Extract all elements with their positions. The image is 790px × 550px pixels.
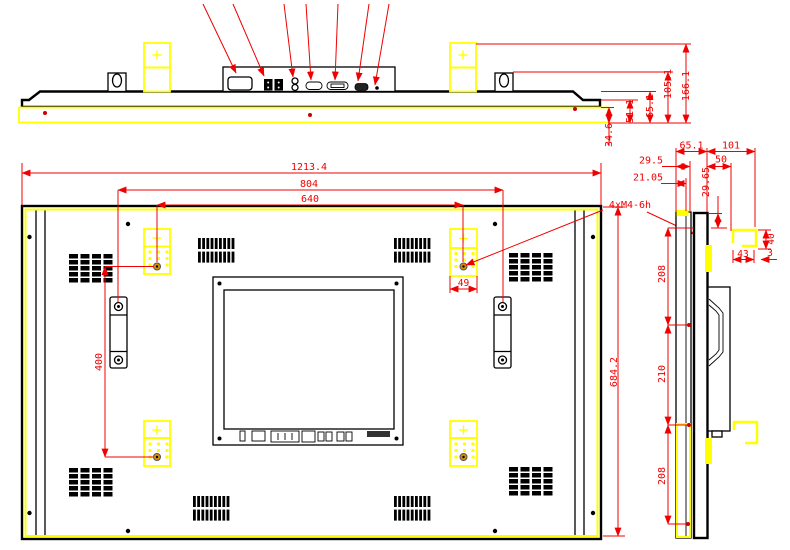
hdmi-port <box>355 84 368 91</box>
side-bezel-highlight-top <box>677 210 689 216</box>
audio-jack <box>292 85 298 91</box>
power-switch <box>264 79 273 91</box>
vesa-bracket-top-right <box>450 43 476 92</box>
dim-overall-width: 1213.4 <box>291 162 327 173</box>
dim-hole-pitch-top: 208 <box>657 265 668 283</box>
side-back-highlight <box>705 438 712 464</box>
connector-box <box>223 67 395 92</box>
side-bracket-top <box>733 230 756 246</box>
rear-view: 1213.4 804 640 684.2 400 49 4xM4-6h <box>22 162 694 539</box>
dim-cover-step: 51.1 <box>625 99 636 123</box>
dim-bracket-height: 166.1 <box>681 71 692 101</box>
dim-handle-spacing: 804 <box>300 179 318 190</box>
dim-mount-spacing-y: 400 <box>94 353 105 371</box>
front-bezel-strip <box>19 108 608 123</box>
indicator-dot <box>375 86 379 90</box>
dim-rear-offset: 50 <box>715 155 727 166</box>
dim-bracket-height: 40 <box>766 233 777 245</box>
electronics-box <box>213 277 403 445</box>
bezel-mark-dot <box>43 111 47 115</box>
dim-bezel-depth: 29.5 <box>639 156 663 167</box>
dim-overall-height: 684.2 <box>609 357 620 387</box>
dim-panel-depth: 65.1 <box>679 141 703 152</box>
dim-front-step: 34.6 <box>604 123 615 147</box>
dim-bracket-depth: 43 <box>737 249 748 260</box>
side-bezel <box>676 212 691 538</box>
dim-top-offset: 29.65 <box>701 167 712 197</box>
label-block <box>367 431 390 437</box>
audio-jack <box>292 78 298 84</box>
drawing-canvas: 34.6 51.1 65.1 105.1 166.1 <box>0 0 790 550</box>
mounting-clip-left <box>108 73 126 92</box>
bezel-mark-dot <box>573 107 577 111</box>
carry-handle-right <box>494 297 511 368</box>
carry-handle-left <box>110 297 127 368</box>
dim-hole-pitch-bottom: 208 <box>657 467 668 485</box>
bezel-mark-dot <box>308 113 312 117</box>
power-switch <box>275 79 284 91</box>
technical-drawing: 34.6 51.1 65.1 105.1 166.1 <box>0 0 790 550</box>
mounting-clip-right <box>495 73 513 92</box>
dim-bracket-gap: 3 <box>767 248 773 259</box>
side-profile-view: 65.1 101 29.5 50 21.05 29.65 40 43 <box>633 141 777 539</box>
side-electronics-box <box>708 287 730 437</box>
thread-note: 4xM4-6h <box>609 200 651 211</box>
top-profile-view: 34.6 51.1 65.1 105.1 166.1 <box>19 4 692 147</box>
vesa-bracket <box>144 421 170 466</box>
dim-mount-depth: 101 <box>722 141 740 152</box>
top-body-outline <box>22 92 600 108</box>
vesa-bracket-top-left <box>144 43 170 92</box>
dim-mount-spacing-x: 640 <box>301 194 319 205</box>
dim-clip-height: 105.1 <box>663 69 674 99</box>
side-back-highlight <box>705 245 712 272</box>
dim-glass-depth: 21.05 <box>633 173 663 184</box>
dim-body-depth: 65.1 <box>645 94 656 118</box>
side-bracket-bottom <box>734 422 757 443</box>
dim-hole-pitch-mid: 210 <box>657 365 668 383</box>
vesa-bracket <box>450 421 477 466</box>
dim-bracket-width: 49 <box>458 278 470 289</box>
